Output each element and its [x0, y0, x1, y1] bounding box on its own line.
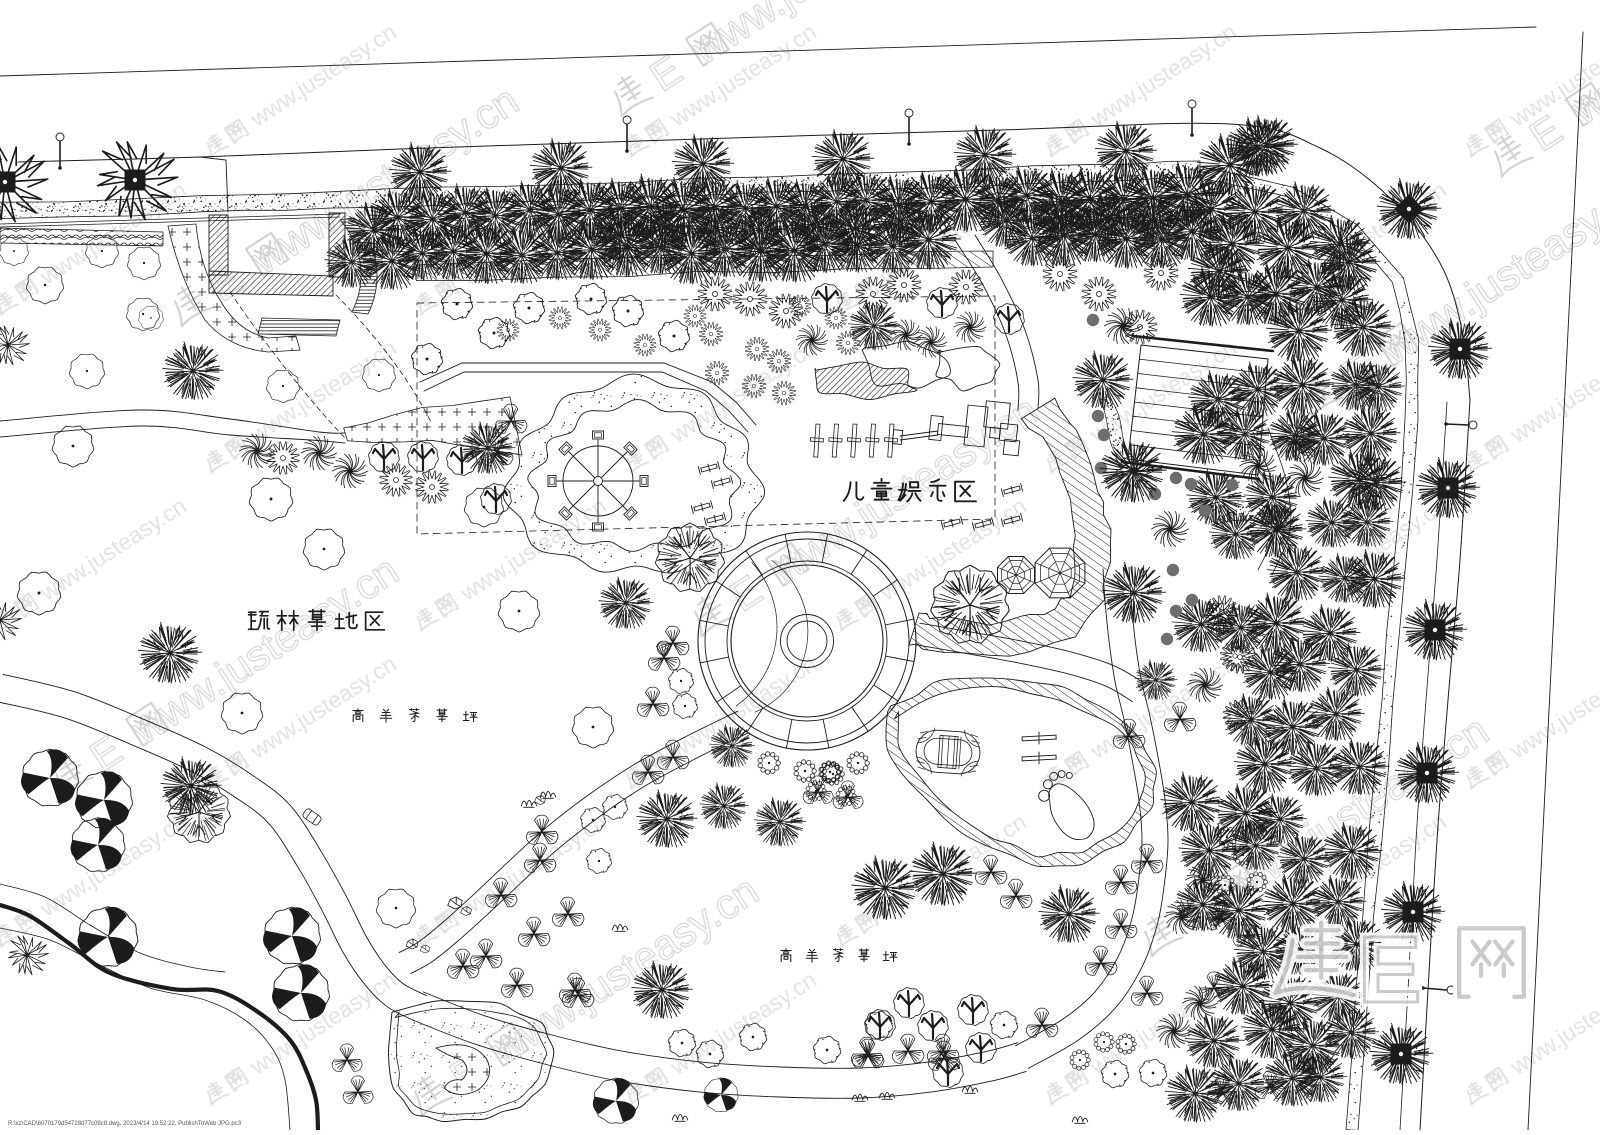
svg-text:E: E	[1358, 917, 1421, 1023]
svg-text:R:\xz\CAD\6070179d54728d77c09c: R:\xz\CAD\6070179d54728d77c09c8.dwg, 202…	[8, 1121, 242, 1127]
